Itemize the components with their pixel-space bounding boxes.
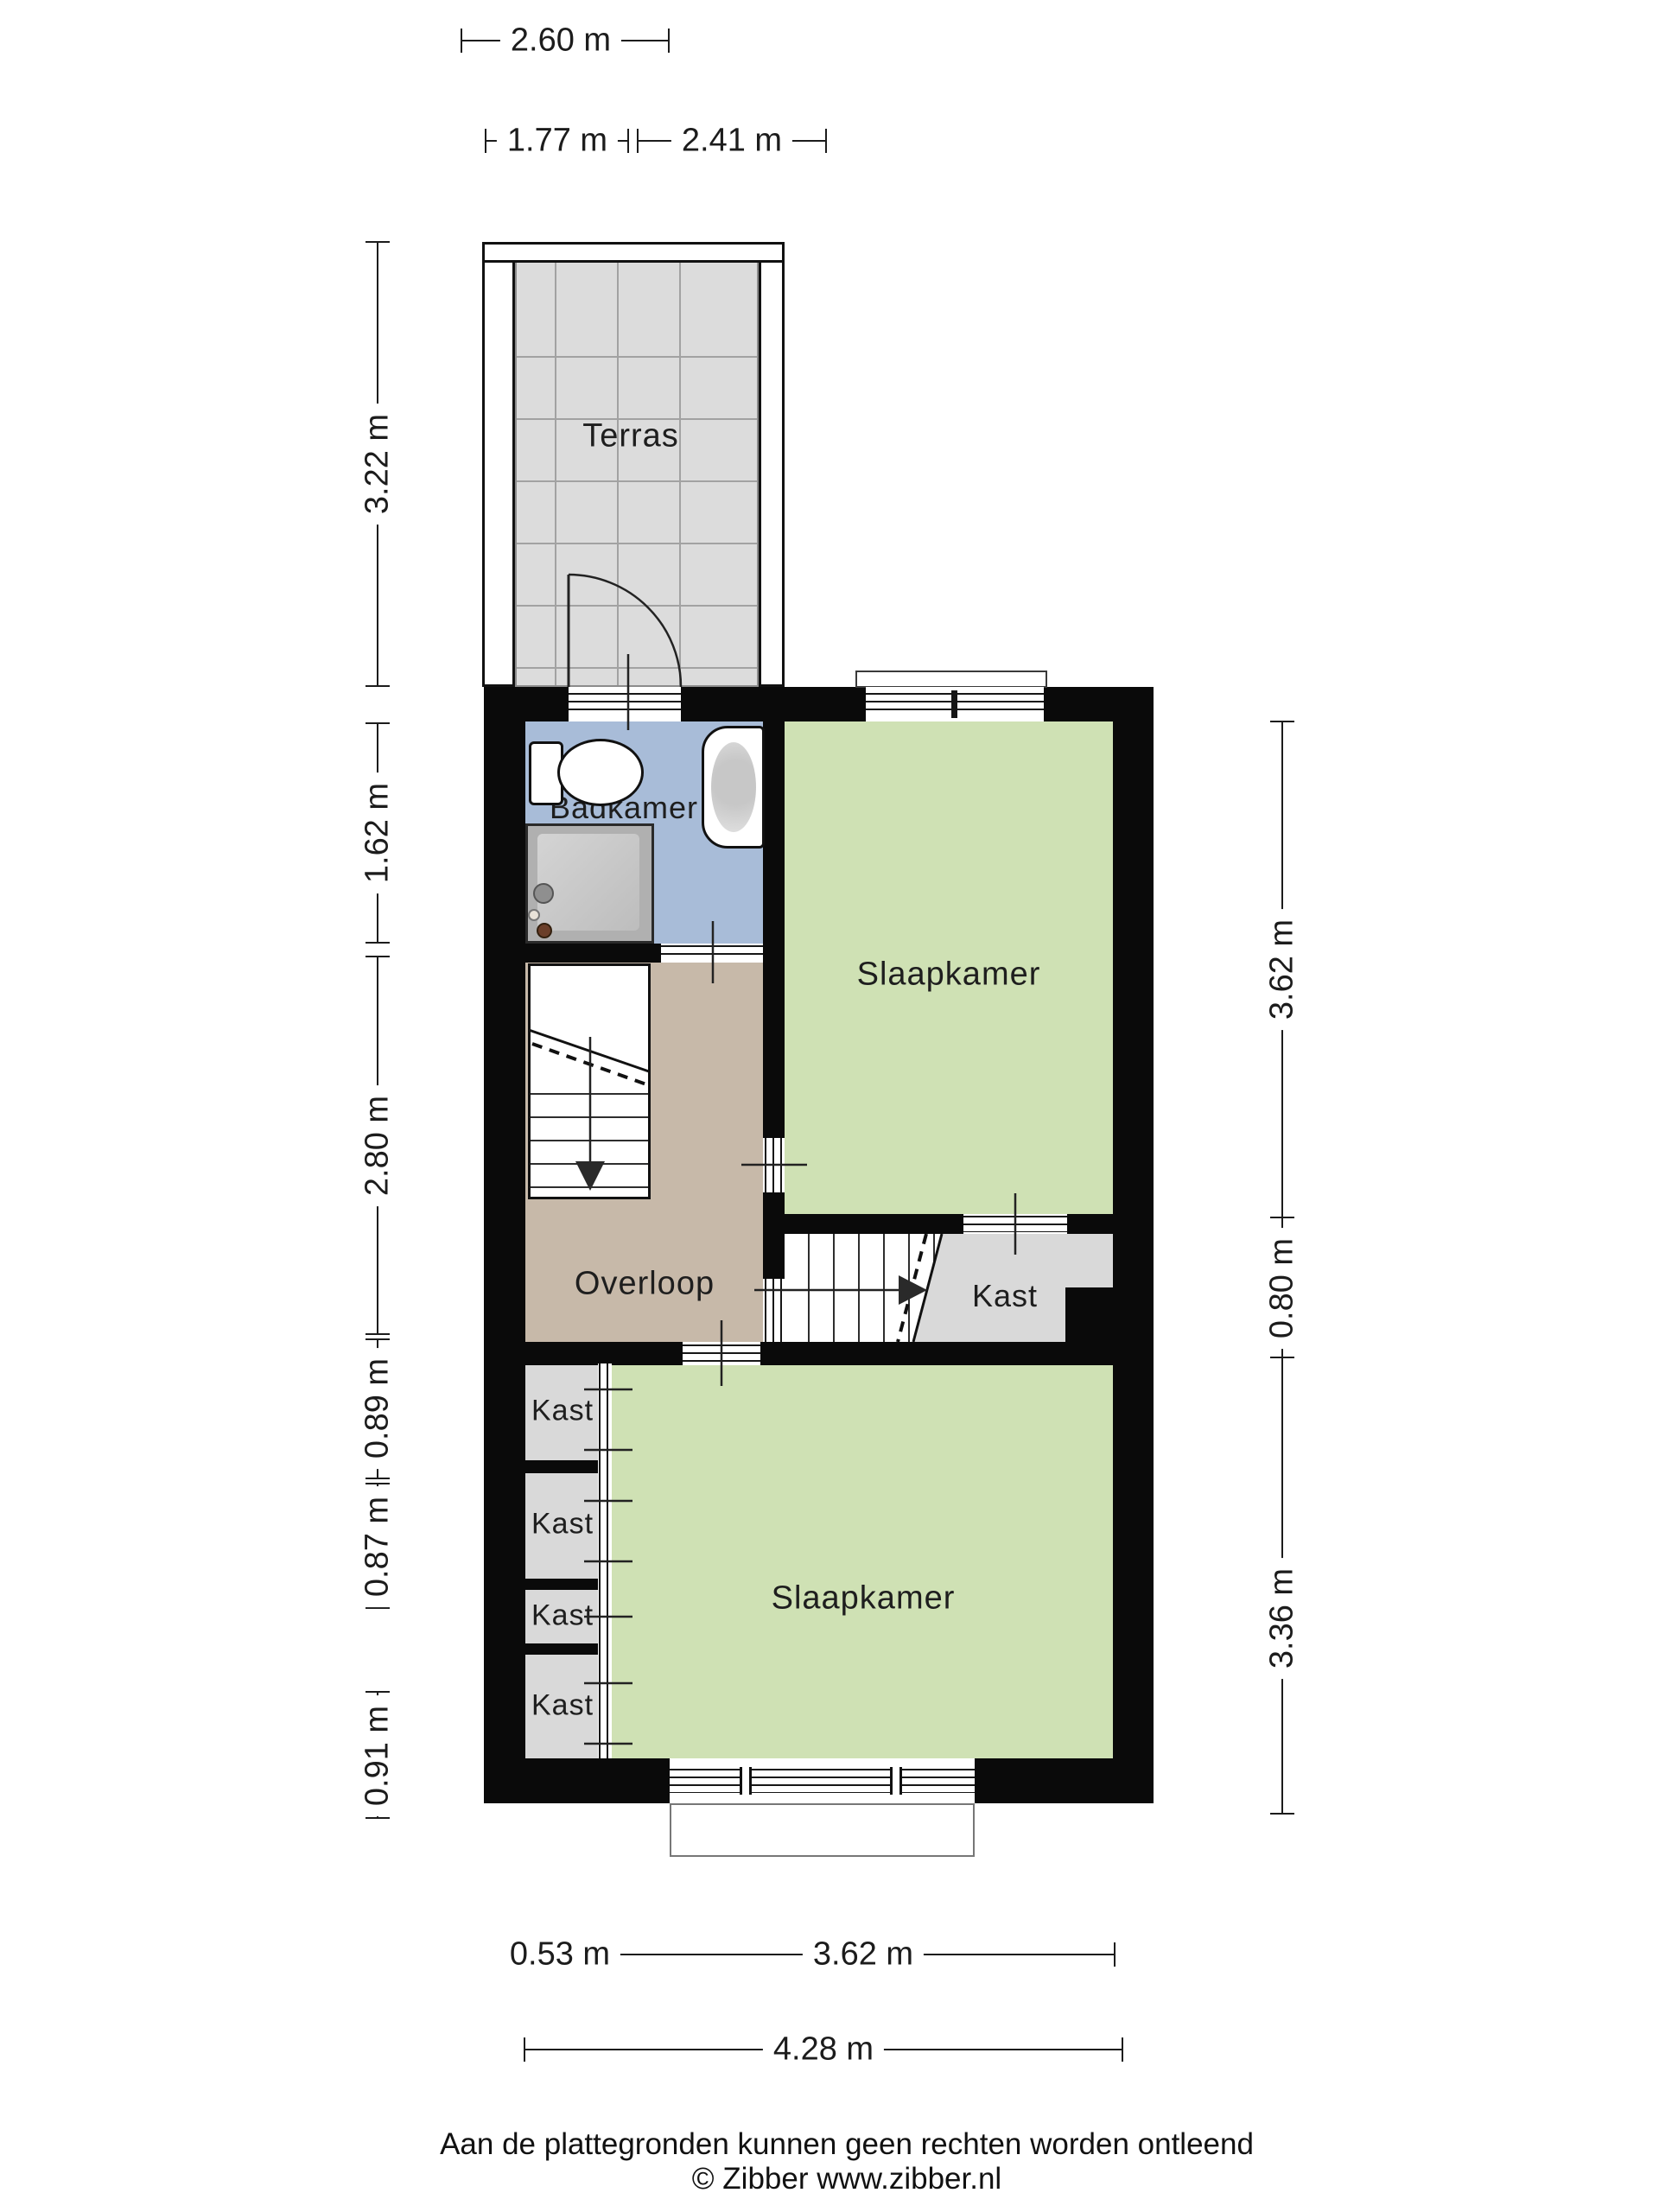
dim-bottom-362-label: 3.62 m (803, 1936, 924, 1974)
dim-left-322-label: 3.22 m (356, 404, 400, 524)
dim-left-091-tick-bottom (365, 1817, 390, 1819)
dim-bottom-362-tick-right (1114, 1942, 1116, 1967)
dim-top-260-label: 2.60 m (500, 22, 621, 60)
dim-top-241-label: 2.41 m (671, 123, 792, 160)
dim-left-089-label: 0.89 m (356, 1348, 400, 1469)
dim-left-162-tick-top (365, 722, 390, 724)
dim-left-089-tick-top (365, 1338, 390, 1340)
dim-left-280-tick-bottom (365, 1333, 390, 1335)
floorplan-lines-overlay (0, 0, 1659, 2212)
dim-left-280-tick-top (365, 956, 390, 957)
dim-right-336-label: 3.36 m (1261, 1558, 1305, 1679)
stairs-arrow-head (575, 1161, 605, 1191)
dim-bottom-428-tick-left (524, 2037, 525, 2062)
dim-bottom-428-label: 4.28 m (763, 2031, 884, 2069)
dim-top-241-tick-left (637, 129, 639, 153)
kast-stairs-arrow-head (899, 1275, 927, 1305)
dim-top-177-tick-right (627, 129, 629, 153)
dim-left-089-tick-bottom (365, 1478, 390, 1479)
dim-top-260-tick-left (461, 29, 462, 53)
dim-left-280-label: 2.80 m (356, 1085, 400, 1206)
dim-right-080-tick-bottom (1270, 1357, 1294, 1358)
dim-left-087-label: 0.87 m (356, 1486, 400, 1607)
dim-right-080-label: 0.80 m (1261, 1228, 1305, 1349)
dim-left-087-tick-bottom (365, 1607, 390, 1609)
floorplan-page: Terras Badkamer Slaapkamer Overloop Kast… (0, 0, 1659, 2212)
dim-left-091-label: 0.91 m (356, 1695, 400, 1816)
dim-top-241-tick-right (825, 129, 827, 153)
dim-bottom-428-tick-right (1122, 2037, 1123, 2062)
dim-left-087-tick-top (365, 1483, 390, 1484)
dim-right-362-tick-top (1270, 721, 1294, 722)
dim-left-091-tick-top (365, 1691, 390, 1693)
dim-left-322-tick-top (365, 241, 390, 243)
dim-left-322-tick-bottom (365, 685, 390, 687)
dim-top-177-tick-left (485, 129, 486, 153)
dim-top-177-label: 1.77 m (497, 123, 618, 160)
dim-left-162-tick-bottom (365, 942, 390, 944)
dim-right-362-label: 3.62 m (1261, 909, 1305, 1030)
terras-door-arc (569, 575, 681, 687)
dim-bottom-053-label: 0.53 m (499, 1936, 620, 1974)
dim-left-162-label: 1.62 m (356, 772, 400, 893)
dim-right-336-tick-bottom (1270, 1813, 1294, 1815)
dim-right-362-tick-bottom (1270, 1217, 1294, 1218)
dim-top-260-tick-right (668, 29, 670, 53)
